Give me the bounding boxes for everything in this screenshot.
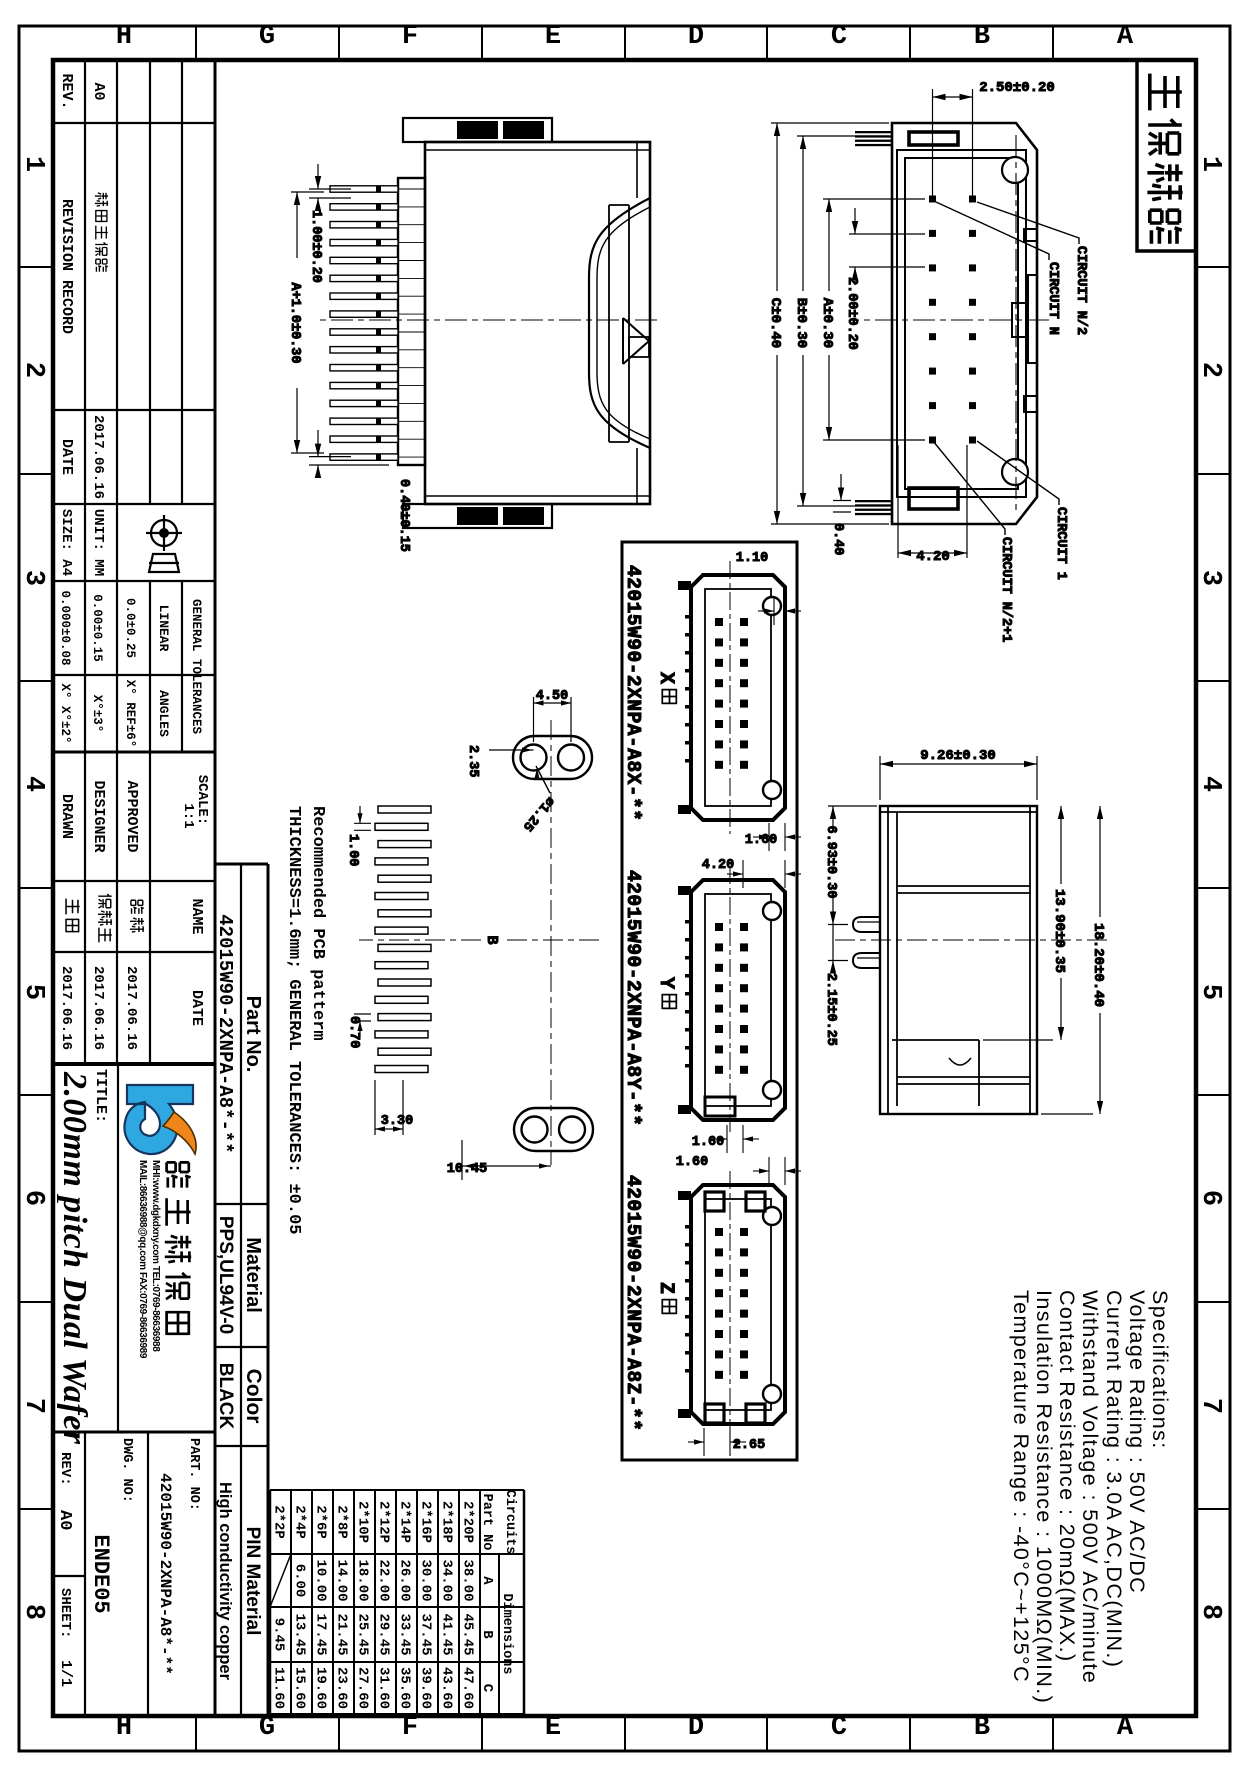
svg-text:2*6P: 2*6P <box>313 1505 329 1539</box>
svg-text:18.00: 18.00 <box>355 1559 371 1601</box>
svg-text:MHI:www.dgkdxny.com TEL:076: MHI:www.dgkdxny.com TEL:0769-86636988 <box>150 1160 161 1352</box>
svg-text:2.00mm pitch Dual Wafer: 2.00mm pitch Dual Wafer <box>56 1071 93 1445</box>
svg-text:17.45: 17.45 <box>313 1613 329 1655</box>
svg-text:38.00: 38.00 <box>460 1559 476 1601</box>
svg-text:3.30: 3.30 <box>381 1114 413 1129</box>
svg-text:1.60: 1.60 <box>692 1135 724 1150</box>
svg-text:18.20±0.40: 18.20±0.40 <box>1090 923 1106 1007</box>
svg-text:27.60: 27.60 <box>355 1667 371 1709</box>
svg-text:DRAWN: DRAWN <box>58 794 75 839</box>
svg-text:1: 1 <box>1195 156 1225 172</box>
svg-text:2.15±0.25: 2.15±0.25 <box>823 973 838 1046</box>
svg-text:CIRCUIT N: CIRCUIT N <box>1045 262 1060 335</box>
svg-text:2*20P: 2*20P <box>460 1501 476 1543</box>
svg-text:9.26±0.30: 9.26±0.30 <box>920 748 996 764</box>
svg-text:Part No: Part No <box>479 1494 494 1551</box>
svg-text:0.70: 0.70 <box>346 1016 361 1048</box>
svg-text:REVISION RECORD: REVISION RECORD <box>58 199 75 334</box>
svg-text:Withstand Voltage : 500V AC/mi: Withstand Voltage : 500V AC/minute <box>1078 1290 1102 1684</box>
svg-text:A±0.30: A±0.30 <box>819 298 835 348</box>
svg-text:2*10P: 2*10P <box>355 1501 371 1543</box>
svg-text:H: H <box>116 1713 132 1743</box>
svg-text:42015W90-2XNPA-A8Z-**: 42015W90-2XNPA-A8Z-** <box>622 1175 644 1431</box>
svg-text:PIN Material: PIN Material <box>242 1527 263 1636</box>
svg-text:21.45: 21.45 <box>334 1613 350 1655</box>
svg-text:2*16P: 2*16P <box>418 1501 434 1543</box>
svg-text:2017.06.16: 2017.06.16 <box>58 966 74 1050</box>
svg-text:SIZE: A4: SIZE: A4 <box>58 509 74 576</box>
svg-text:13.45: 13.45 <box>292 1613 308 1655</box>
svg-text:42015W90-2XNPA-A8Y-**: 42015W90-2XNPA-A8Y-** <box>622 870 644 1126</box>
svg-text:30.00: 30.00 <box>418 1559 434 1601</box>
svg-text:1.00±0.20: 1.00±0.20 <box>308 210 323 283</box>
svg-text:X°±3°: X°±3° <box>90 695 104 733</box>
svg-text:CIRCUIT N/2: CIRCUIT N/2 <box>1073 246 1088 335</box>
svg-text:6.00: 6.00 <box>292 1564 308 1598</box>
svg-text:0.00±0.15: 0.00±0.15 <box>90 594 104 662</box>
svg-text:1.10: 1.10 <box>736 551 768 566</box>
svg-text:E: E <box>545 22 561 52</box>
svg-text:B: B <box>479 1630 495 1639</box>
svg-text:E: E <box>545 1713 561 1743</box>
svg-text:1.00: 1.00 <box>345 834 360 866</box>
svg-text:6: 6 <box>1195 1190 1225 1206</box>
svg-text:DESIGNER: DESIGNER <box>90 780 107 852</box>
svg-text:2.00±0.20: 2.00±0.20 <box>844 277 859 350</box>
svg-text:15.60: 15.60 <box>292 1667 308 1709</box>
svg-text:8: 8 <box>1195 1604 1225 1620</box>
svg-text:11.60: 11.60 <box>271 1667 287 1709</box>
svg-text:2*12P: 2*12P <box>376 1501 392 1543</box>
svg-text:Material: Material <box>242 1237 264 1313</box>
svg-text:26.00: 26.00 <box>397 1559 413 1601</box>
svg-text:GENERAL TOLERANCES: GENERAL TOLERANCES <box>189 599 203 735</box>
svg-text:0.000±0.08: 0.000±0.08 <box>58 590 72 665</box>
svg-text:X° REF±6°: X° REF±6° <box>123 680 137 748</box>
svg-text:14.00: 14.00 <box>334 1559 350 1601</box>
svg-text:2*4P: 2*4P <box>292 1505 308 1539</box>
svg-text:G: G <box>259 22 275 52</box>
svg-text:22.00: 22.00 <box>376 1559 392 1601</box>
svg-text:BLACK: BLACK <box>215 1363 236 1430</box>
svg-text:0.40±0.15: 0.40±0.15 <box>396 479 411 552</box>
svg-text:Temperature Range : -40°C~+125: Temperature Range : -40°C~+125°C <box>1009 1290 1033 1683</box>
svg-text:D: D <box>688 1713 704 1743</box>
svg-text:PPS,UL94V-0: PPS,UL94V-0 <box>215 1216 236 1334</box>
svg-text:8: 8 <box>18 1604 48 1620</box>
svg-text:Y: Y <box>654 977 677 989</box>
svg-text:1.60: 1.60 <box>745 833 777 848</box>
svg-text:ANGLES: ANGLES <box>156 690 171 737</box>
svg-text:SCALE:: SCALE: <box>194 775 210 825</box>
svg-text:1.60: 1.60 <box>676 1155 708 1170</box>
svg-text:2.65: 2.65 <box>733 1438 765 1453</box>
svg-text:33.45: 33.45 <box>397 1613 413 1655</box>
svg-text:7: 7 <box>1195 1398 1225 1414</box>
svg-text:LINEAR: LINEAR <box>156 605 171 652</box>
svg-text:1/1: 1/1 <box>57 1660 74 1687</box>
svg-text:13.90±0.35: 13.90±0.35 <box>1051 889 1067 973</box>
svg-text:APPROVED: APPROVED <box>123 780 140 852</box>
svg-text:Circuits: Circuits <box>502 1490 517 1555</box>
svg-text:37.45: 37.45 <box>418 1613 434 1655</box>
svg-text:47.60: 47.60 <box>460 1667 476 1709</box>
svg-text:2.50±0.20: 2.50±0.20 <box>979 80 1055 96</box>
svg-text:10.00: 10.00 <box>313 1559 329 1601</box>
svg-text:41.45: 41.45 <box>439 1613 455 1655</box>
svg-text:H: H <box>116 22 132 52</box>
svg-text:Color: Color <box>242 1369 265 1424</box>
svg-text:Specifications:: Specifications: <box>1148 1290 1172 1450</box>
svg-text:34.00: 34.00 <box>439 1559 455 1601</box>
svg-text:42015W90-2XNPA-A8*-**: 42015W90-2XNPA-A8*-** <box>156 1473 174 1675</box>
svg-text:42015W90-2XNPA-A8X-**: 42015W90-2XNPA-A8X-** <box>622 565 644 821</box>
svg-text:B±0.30: B±0.30 <box>793 298 809 348</box>
svg-text:0.40: 0.40 <box>830 523 845 555</box>
svg-text:F: F <box>402 22 418 52</box>
svg-text:ENDE05: ENDE05 <box>88 1534 113 1613</box>
svg-text:A: A <box>1117 22 1134 52</box>
svg-text:A0: A0 <box>90 82 107 100</box>
svg-text:MAIL:86636988@qq.com FAX:0769: MAIL:86636988@qq.com FAX:0769-86636989 <box>137 1160 148 1359</box>
svg-text:10.45: 10.45 <box>447 1162 488 1177</box>
svg-text:C±0.40: C±0.40 <box>767 298 783 348</box>
svg-text:2*18P: 2*18P <box>439 1501 455 1543</box>
svg-text:23.60: 23.60 <box>334 1667 350 1709</box>
svg-text:42015W90-2XNPA-A8*-**: 42015W90-2XNPA-A8*-** <box>214 914 236 1153</box>
svg-text:4: 4 <box>18 776 48 792</box>
svg-text:3: 3 <box>1195 570 1225 586</box>
svg-text:REV:: REV: <box>57 1452 73 1486</box>
svg-text:C: C <box>831 22 847 52</box>
svg-text:19.60: 19.60 <box>313 1667 329 1709</box>
svg-text:2*14P: 2*14P <box>397 1501 413 1543</box>
svg-text:TITLE:: TITLE: <box>92 1069 109 1123</box>
svg-text:C: C <box>479 1684 495 1693</box>
svg-text:2: 2 <box>1195 362 1225 378</box>
svg-text:25.45: 25.45 <box>355 1613 371 1655</box>
svg-text:Insulation Resistance : 1000MΩ: Insulation Resistance : 1000MΩ(MIN.) <box>1032 1290 1056 1704</box>
svg-text:Z: Z <box>654 1282 677 1294</box>
svg-text:DATE: DATE <box>188 990 205 1026</box>
svg-text:CIRCUIT 1: CIRCUIT 1 <box>1053 507 1068 580</box>
svg-text:A+1.0±0.30: A+1.0±0.30 <box>287 282 302 363</box>
svg-text:DATE: DATE <box>58 439 75 475</box>
svg-text:X° X°±2°: X° X°±2° <box>58 683 72 743</box>
svg-text:2017.06.16: 2017.06.16 <box>90 966 106 1050</box>
svg-text:PART. NO:: PART. NO: <box>186 1438 201 1511</box>
svg-text:A: A <box>479 1576 495 1585</box>
svg-text:6.93±0.30: 6.93±0.30 <box>823 826 838 899</box>
svg-text:7: 7 <box>18 1398 48 1414</box>
svg-text:THICKNESS=1.6mm; GENERAL TOLER: THICKNESS=1.6mm; GENERAL TOLERANCES: ±0.… <box>284 806 303 1234</box>
svg-text:29.45: 29.45 <box>376 1613 392 1655</box>
svg-text:G: G <box>259 1713 275 1743</box>
svg-text:43.60: 43.60 <box>439 1667 455 1709</box>
svg-text:F: F <box>402 1713 418 1743</box>
svg-text:2: 2 <box>18 362 48 378</box>
svg-text:A0: A0 <box>55 1510 74 1530</box>
svg-text:35.60: 35.60 <box>397 1667 413 1709</box>
svg-text:Recommended PCB patterm: Recommended PCB patterm <box>308 806 327 1041</box>
svg-text:X: X <box>654 672 677 684</box>
svg-text:4: 4 <box>1195 776 1225 792</box>
svg-text:Current Rating : 3.0A AC,DC(MI: Current Rating : 3.0A AC,DC(MIN.) <box>1102 1290 1126 1668</box>
svg-text:5: 5 <box>1195 984 1225 1000</box>
svg-text:1: 1 <box>18 156 48 172</box>
svg-text:Part No.: Part No. <box>242 996 264 1073</box>
svg-text:REV.: REV. <box>58 73 75 109</box>
svg-text:High conductivity copper: High conductivity copper <box>216 1482 234 1681</box>
svg-text:B: B <box>974 1713 990 1743</box>
svg-text:DWG. NO:: DWG. NO: <box>119 1438 134 1503</box>
svg-text:2017.06.16: 2017.06.16 <box>123 966 139 1050</box>
svg-text:31.60: 31.60 <box>376 1667 392 1709</box>
svg-text:9.45: 9.45 <box>271 1618 287 1652</box>
svg-text:2.35: 2.35 <box>465 745 480 777</box>
svg-text:Contact Resistance : 20mΩ(MAX.: Contact Resistance : 20mΩ(MAX.) <box>1055 1290 1079 1663</box>
svg-text:2*8P: 2*8P <box>334 1505 350 1539</box>
svg-text:4.50: 4.50 <box>536 689 568 704</box>
svg-text:C: C <box>831 1713 847 1743</box>
svg-text:6: 6 <box>18 1190 48 1206</box>
svg-text:UNIT: MM: UNIT: MM <box>90 509 106 576</box>
svg-text:4.20: 4.20 <box>702 858 734 873</box>
svg-text:1:1: 1:1 <box>180 803 196 828</box>
svg-text:5: 5 <box>18 984 48 1000</box>
svg-text:4.20: 4.20 <box>916 549 950 565</box>
svg-text:Voltage Rating : 50V AC/DC: Voltage Rating : 50V AC/DC <box>1125 1290 1149 1594</box>
svg-text:2*2P: 2*2P <box>271 1505 287 1539</box>
svg-text:45.45: 45.45 <box>460 1613 476 1655</box>
svg-text:3: 3 <box>18 570 48 586</box>
svg-text:A: A <box>1117 1713 1134 1743</box>
svg-text:B: B <box>974 22 990 52</box>
svg-text:D: D <box>688 22 704 52</box>
svg-text:B: B <box>483 935 500 944</box>
svg-text:39.60: 39.60 <box>418 1667 434 1709</box>
svg-text:2017.06.16: 2017.06.16 <box>90 415 106 499</box>
svg-text:NAME: NAME <box>188 898 205 934</box>
svg-text:SHEET:: SHEET: <box>57 1588 73 1638</box>
svg-text:Dimensions: Dimensions <box>499 1593 514 1674</box>
svg-text:0.0±0.25: 0.0±0.25 <box>123 598 137 658</box>
svg-text:CIRCUIT N/2+1: CIRCUIT N/2+1 <box>998 537 1013 642</box>
